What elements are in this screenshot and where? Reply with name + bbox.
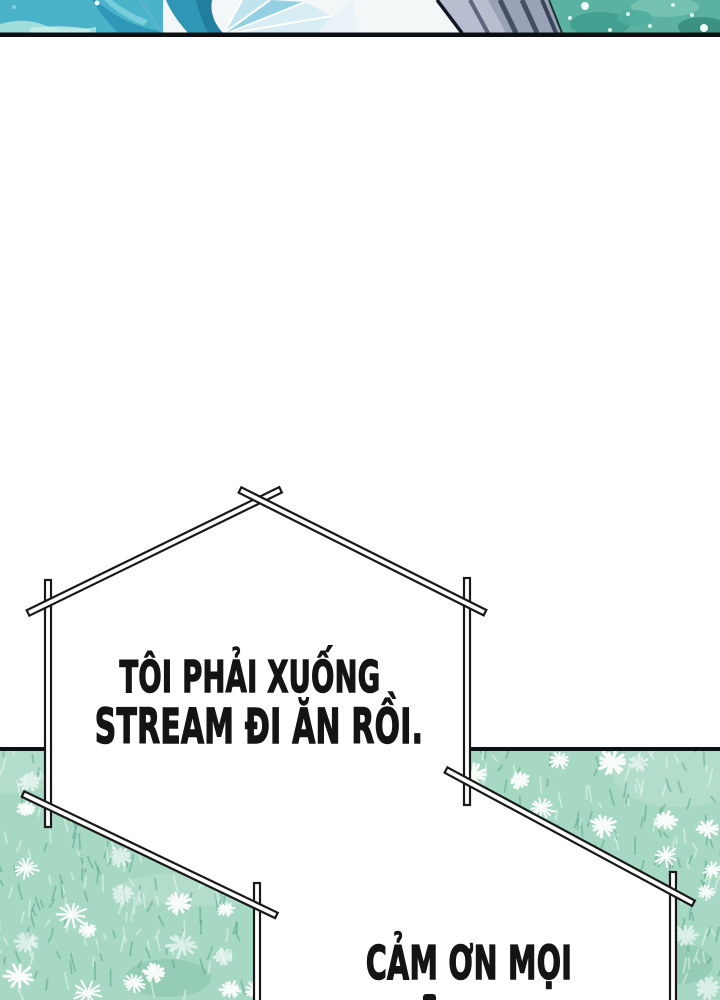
- flower-field-panel: [0, 747, 720, 1000]
- teal-water-area: [0, 0, 163, 33]
- bubble1-text-line2: STREAM ĐI ĂN RỒI.: [95, 701, 424, 753]
- foliage-area: [549, 0, 720, 37]
- bubble1-top-left-stick: [27, 487, 282, 616]
- flower-field-texture: [0, 751, 720, 1000]
- previous-panel-strip: [0, 0, 720, 37]
- bubble1-text-line1: TÔI PHẢI XUỐNG: [120, 654, 381, 702]
- bubble2-next-line-fragment: [423, 994, 436, 1000]
- panel-divider: [0, 33, 720, 38]
- comic-page: TÔI PHẢI XUỐNG STREAM ĐI ĂN RỒI. CẢM ƠN …: [0, 0, 720, 1000]
- bubble2-text-line1: CẢM ƠN MỌI: [366, 937, 572, 989]
- previous-panel-artwork: [0, 0, 720, 37]
- bubble1-top-right-stick: [239, 487, 487, 615]
